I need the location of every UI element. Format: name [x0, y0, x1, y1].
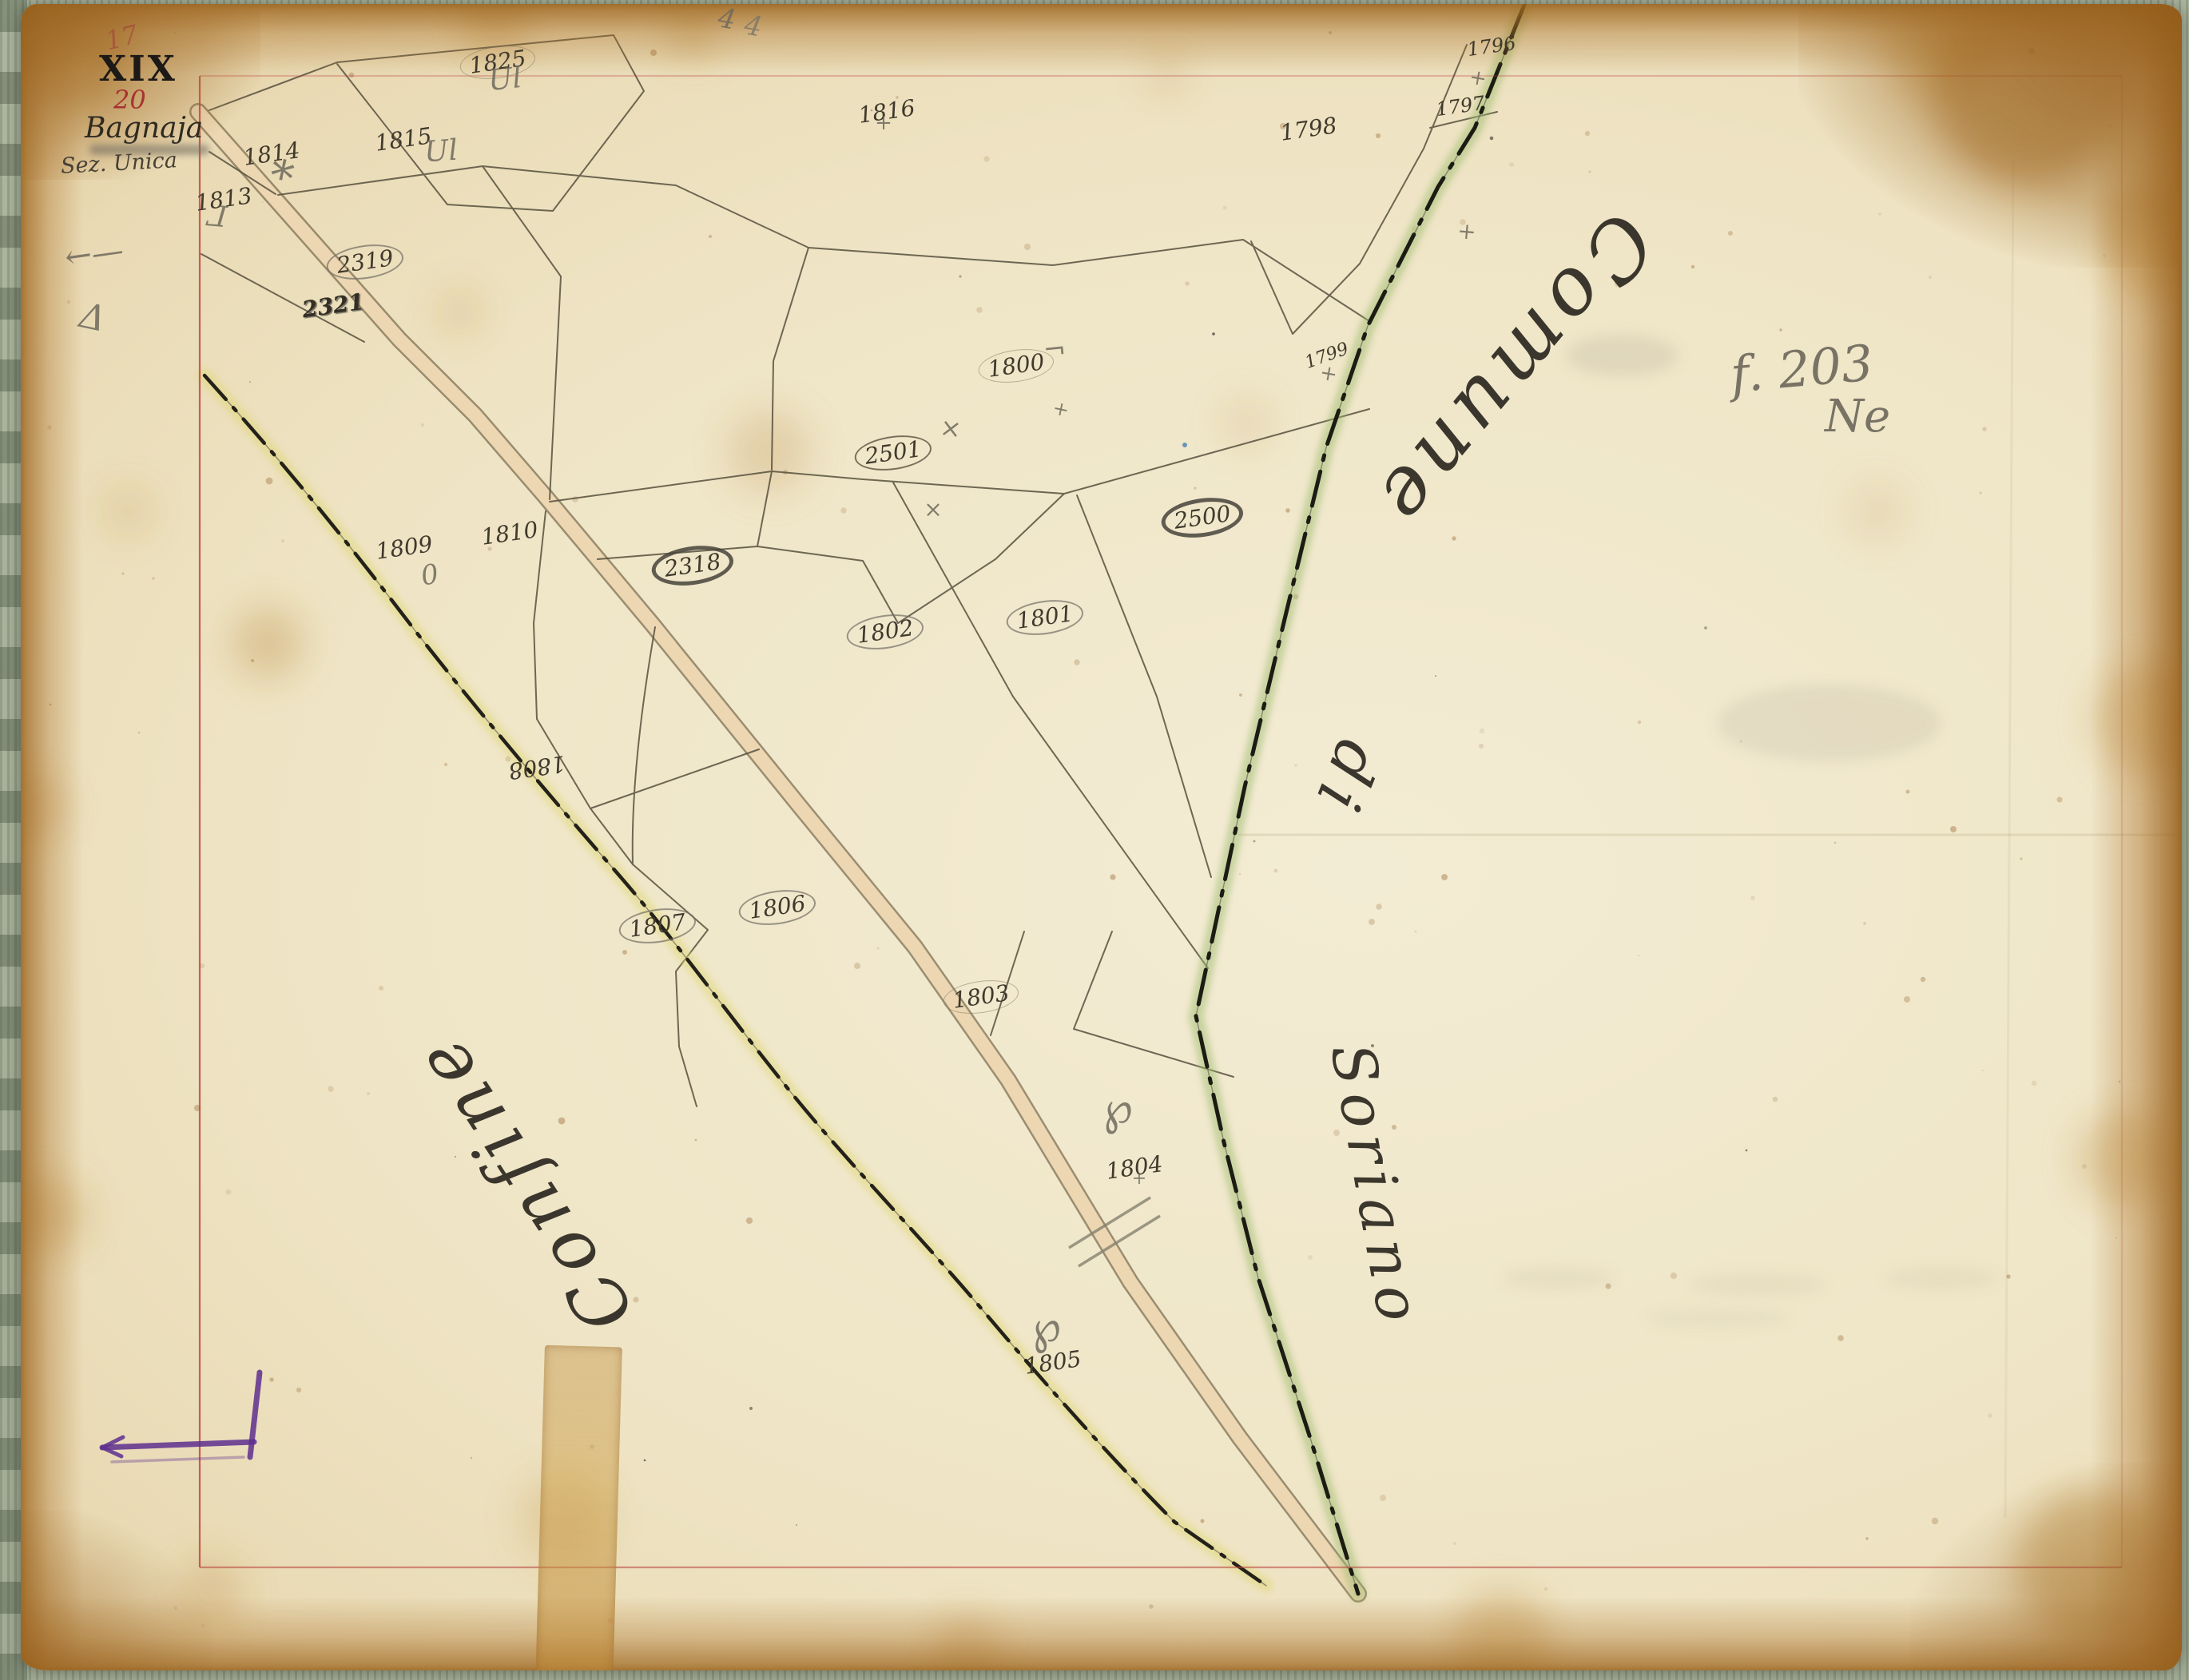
map-linework — [21, 4, 2182, 1670]
orientation-note: Ne — [1825, 391, 1890, 443]
boundary-yellow — [205, 375, 1266, 1586]
map-title: Bagnaja — [85, 114, 203, 143]
purple-crayon-mark — [102, 1372, 260, 1462]
sheet-number: 20 — [113, 87, 146, 113]
graphite-smudges — [1502, 335, 1997, 1328]
neatline — [200, 76, 2122, 1567]
map-sheet: ComunediSorianoConfine 18251816179817961… — [21, 4, 2182, 1670]
fold-crease-vertical — [2005, 160, 2013, 1518]
tape-repair — [535, 1345, 622, 1670]
boundary-green — [1196, 5, 1524, 1594]
road — [198, 112, 1358, 1594]
paper-stains — [21, 4, 2182, 1670]
series-numeral: XIX — [99, 52, 177, 87]
blue-ink-speck — [1182, 443, 1187, 447]
foxing-spots — [47, 31, 2120, 1627]
section-note: Sez. Unica — [60, 149, 177, 177]
